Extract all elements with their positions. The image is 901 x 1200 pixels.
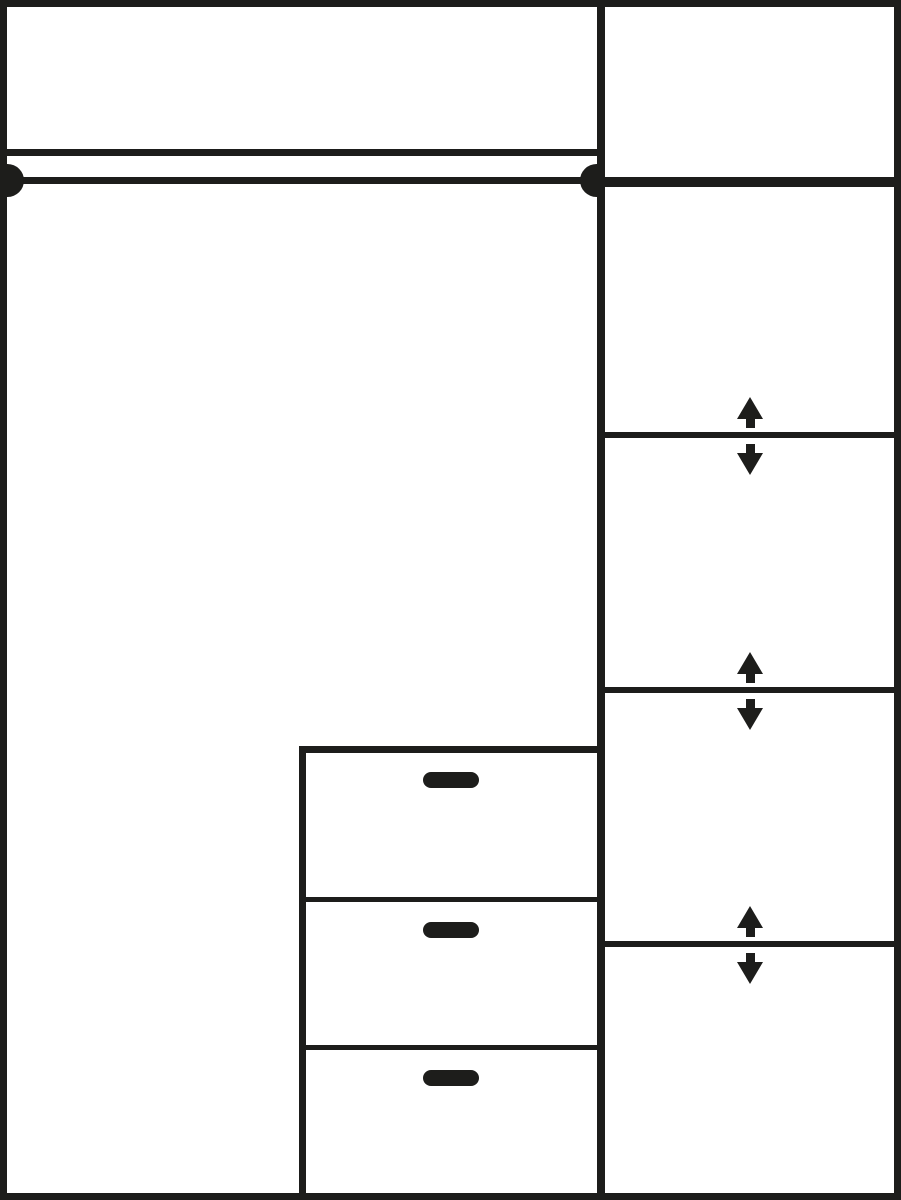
wardrobe-diagram bbox=[0, 0, 901, 1200]
right-fixed-shelf bbox=[605, 177, 894, 187]
drawer-unit-left-panel bbox=[299, 746, 306, 1193]
adjustable-shelf-1 bbox=[605, 432, 894, 438]
hanging-rail bbox=[7, 177, 597, 184]
shelf-3-down-arrow-icon bbox=[737, 953, 763, 984]
drawer-unit-top-panel bbox=[299, 746, 605, 753]
drawer-divider-2 bbox=[306, 1045, 597, 1050]
left-top-shelf bbox=[7, 149, 597, 156]
shelf-2-down-arrow-icon bbox=[737, 699, 763, 730]
shelf-3-up-arrow-icon bbox=[737, 906, 763, 937]
drawer-2-handle-icon bbox=[423, 922, 479, 938]
drawer-1-handle-icon bbox=[423, 772, 479, 788]
shelf-1-up-arrow-icon bbox=[737, 397, 763, 428]
adjustable-shelf-3 bbox=[605, 941, 894, 947]
drawer-divider-1 bbox=[306, 897, 597, 902]
adjustable-shelf-2 bbox=[605, 687, 894, 693]
shelf-1-down-arrow-icon bbox=[737, 444, 763, 475]
drawer-3-handle-icon bbox=[423, 1070, 479, 1086]
center-divider-panel bbox=[597, 0, 605, 1200]
shelf-2-up-arrow-icon bbox=[737, 652, 763, 683]
